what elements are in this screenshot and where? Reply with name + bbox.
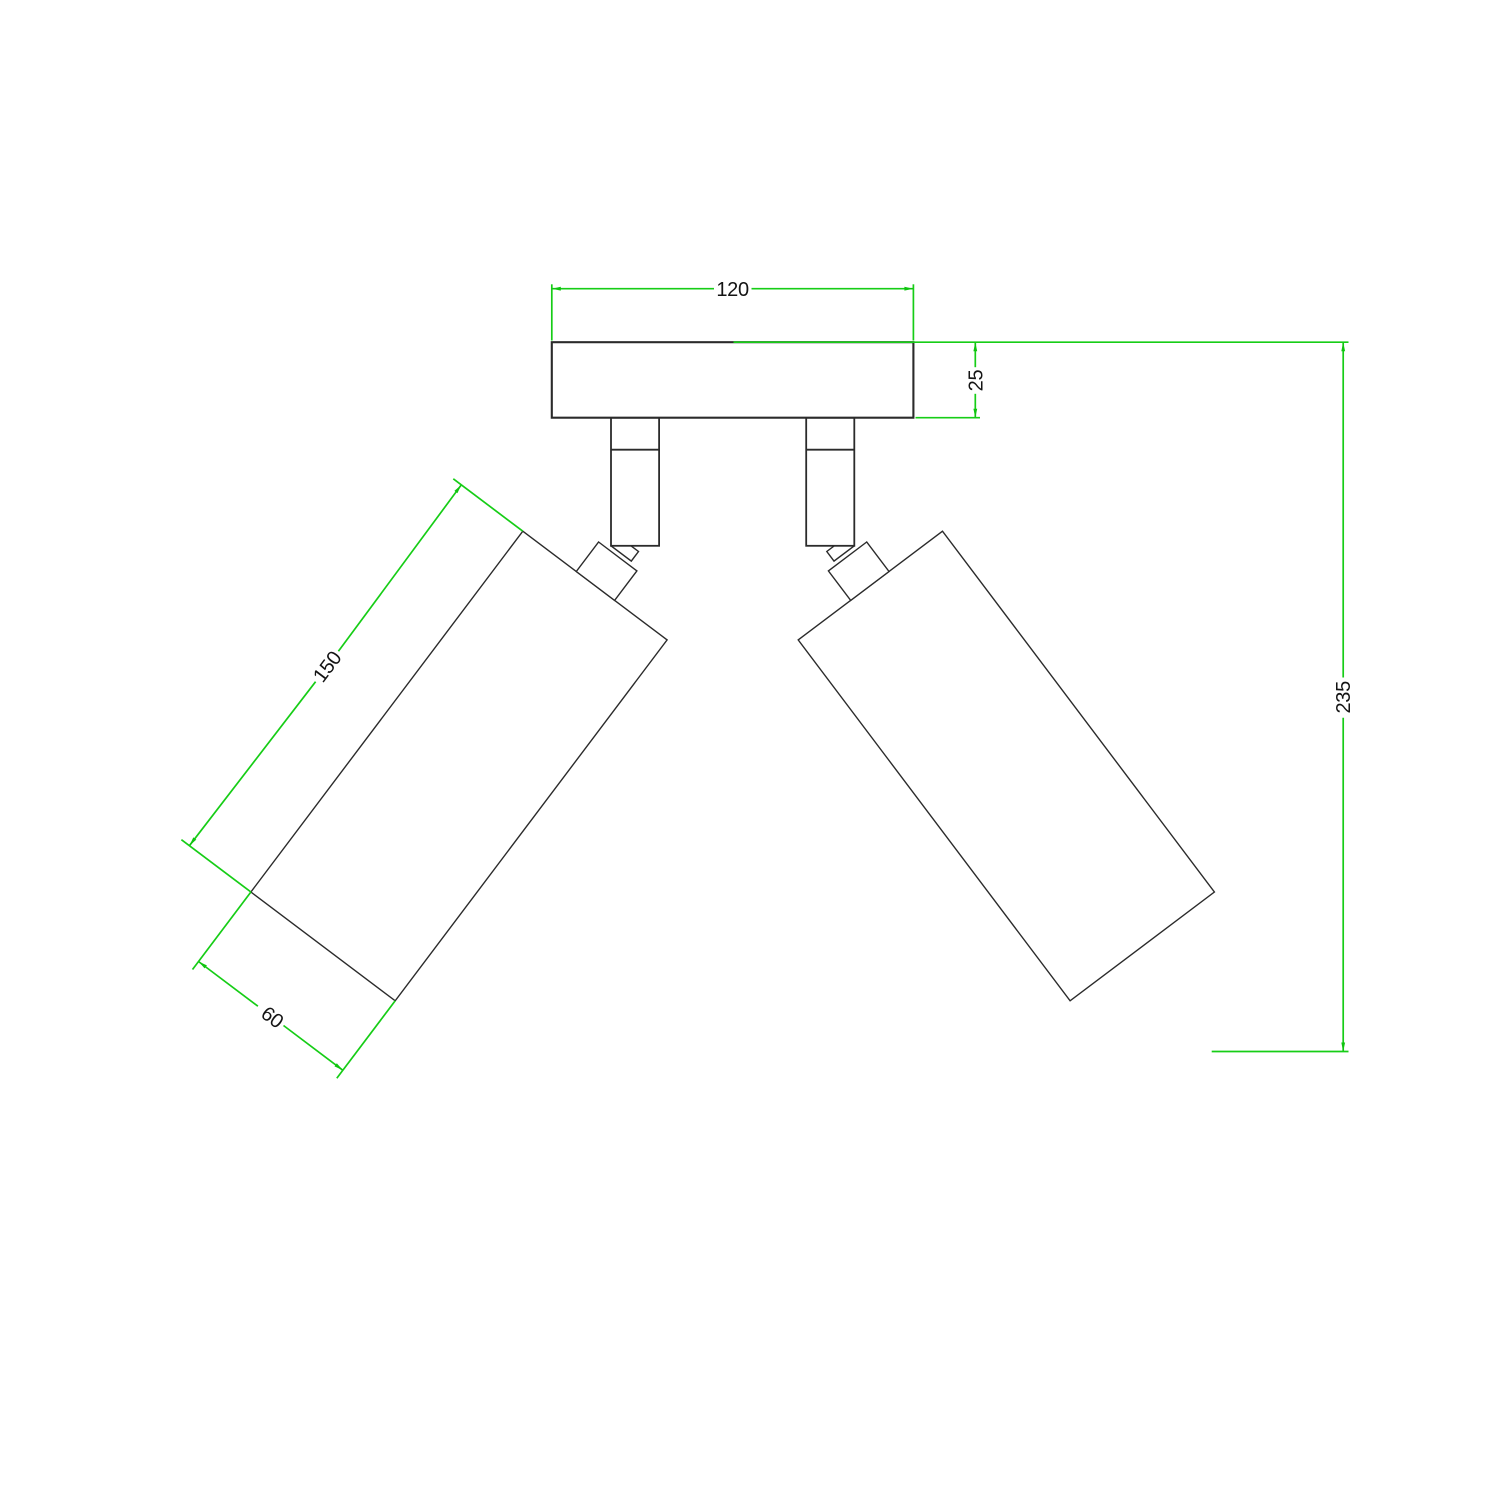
svg-text:120: 120 xyxy=(716,279,749,301)
svg-text:235: 235 xyxy=(1333,681,1355,714)
svg-text:25: 25 xyxy=(965,370,987,392)
